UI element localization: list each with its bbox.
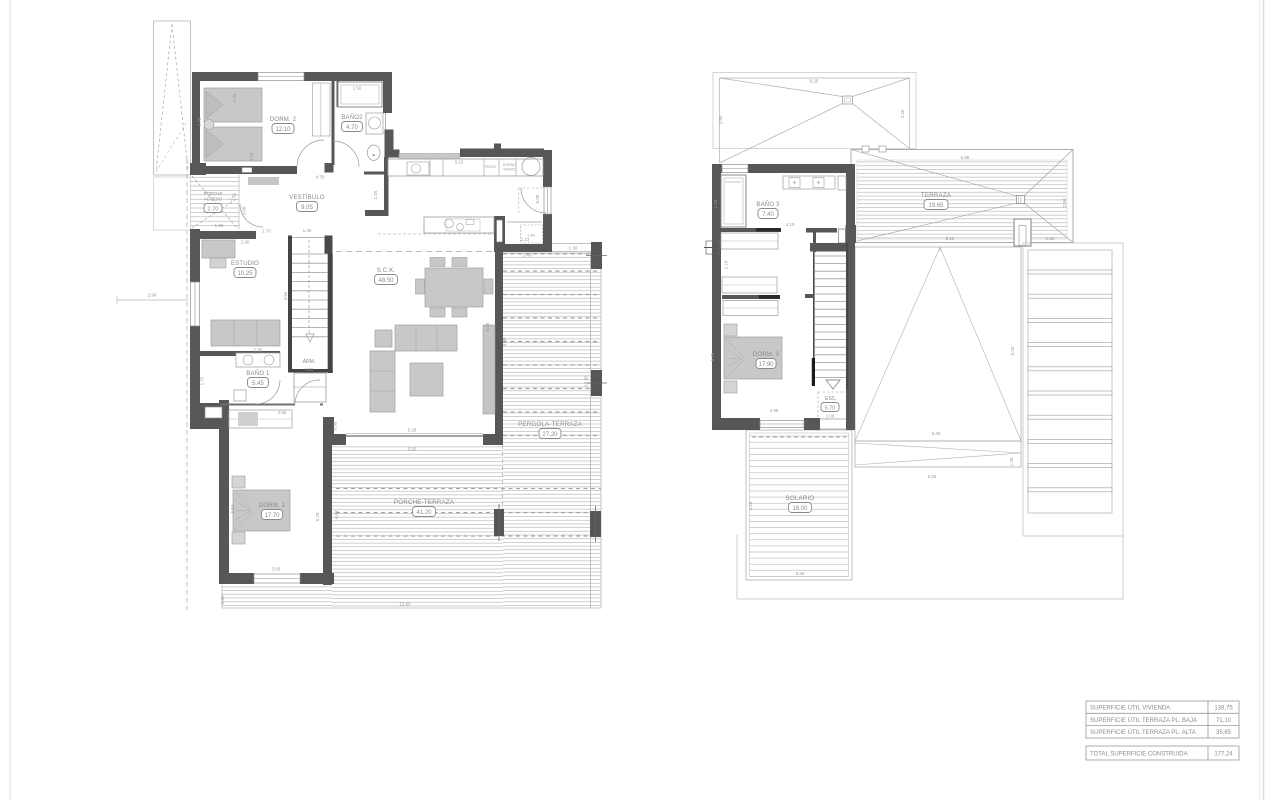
svg-text:48.50: 48.50 xyxy=(378,278,394,284)
svg-text:17.86: 17.86 xyxy=(584,375,589,387)
svg-text:6.25: 6.25 xyxy=(485,322,490,331)
svg-text:0.90: 0.90 xyxy=(220,595,225,604)
svg-text:ESC.: ESC. xyxy=(825,396,837,402)
svg-text:12.10: 12.10 xyxy=(275,127,291,133)
svg-text:35,65: 35,65 xyxy=(1216,730,1232,736)
svg-text:27.20: 27.20 xyxy=(542,432,558,438)
svg-text:41.20: 41.20 xyxy=(416,510,432,516)
svg-text:4.10: 4.10 xyxy=(786,222,795,227)
svg-text:HORNO: HORNO xyxy=(503,163,517,167)
svg-text:2.90: 2.90 xyxy=(241,240,250,245)
svg-text:5.75: 5.75 xyxy=(710,352,715,361)
svg-text:2.00: 2.00 xyxy=(242,206,247,215)
svg-text:4.50: 4.50 xyxy=(502,337,507,346)
svg-text:DORM. 2: DORM. 2 xyxy=(270,117,297,123)
svg-text:5.55: 5.55 xyxy=(928,474,937,479)
svg-text:10.25: 10.25 xyxy=(237,271,253,277)
svg-text:1.25: 1.25 xyxy=(373,190,378,199)
svg-text:SUPERFICIE ÚTIL VIVIENDA: SUPERFICIE ÚTIL VIVIENDA xyxy=(1090,705,1170,712)
svg-text:3.55: 3.55 xyxy=(283,291,288,300)
svg-text:2.75: 2.75 xyxy=(197,117,202,126)
svg-text:SOLARIO: SOLARIO xyxy=(786,495,815,502)
svg-text:FRIGO: FRIGO xyxy=(485,165,497,169)
svg-text:1.30: 1.30 xyxy=(569,246,578,251)
svg-text:2.70: 2.70 xyxy=(208,207,219,213)
svg-text:BAÑO 1: BAÑO 1 xyxy=(246,370,270,377)
svg-text:6.20: 6.20 xyxy=(1010,346,1015,355)
svg-text:1.05: 1.05 xyxy=(303,228,312,233)
svg-text:1.70: 1.70 xyxy=(262,229,271,234)
svg-text:5.10: 5.10 xyxy=(455,160,464,165)
svg-text:TOTAL SUPERFICIE CONSTRUIDA: TOTAL SUPERFICIE CONSTRUIDA xyxy=(1090,752,1188,758)
svg-text:1.08: 1.08 xyxy=(826,414,835,419)
svg-text:1.75: 1.75 xyxy=(713,199,718,208)
svg-text:2.96: 2.96 xyxy=(770,408,779,413)
svg-text:1.55: 1.55 xyxy=(215,223,224,228)
svg-text:2.96: 2.96 xyxy=(148,293,157,298)
svg-text:0.90: 0.90 xyxy=(535,194,540,203)
svg-text:4.70: 4.70 xyxy=(346,125,358,131)
svg-text:TERRAZA: TERRAZA xyxy=(921,192,952,199)
svg-text:2.10: 2.10 xyxy=(724,260,729,269)
svg-text:PORCHE: PORCHE xyxy=(204,191,223,196)
svg-text:5.50: 5.50 xyxy=(408,447,417,452)
svg-text:ESTUDIO: ESTUDIO xyxy=(231,261,259,267)
svg-text:6.25: 6.25 xyxy=(810,79,819,84)
svg-text:ARM.: ARM. xyxy=(303,359,316,365)
svg-text:1.40: 1.40 xyxy=(523,253,532,258)
svg-text:1.20: 1.20 xyxy=(1046,236,1055,241)
svg-text:0.98: 0.98 xyxy=(333,421,338,430)
svg-text:2.30: 2.30 xyxy=(900,109,905,118)
svg-text:2.90: 2.90 xyxy=(1062,198,1067,207)
svg-text:PORCHE-TERRAZA: PORCHE-TERRAZA xyxy=(394,499,455,506)
svg-text:S.C.K.: S.C.K. xyxy=(377,268,396,274)
svg-text:MICRO: MICRO xyxy=(504,168,516,172)
svg-text:5.70: 5.70 xyxy=(825,406,836,412)
svg-text:5.45: 5.45 xyxy=(252,381,264,387)
svg-text:SUPERFICIE ÚTIL TERRAZA PL. BA: SUPERFICIE ÚTIL TERRAZA PL. BAJA xyxy=(1090,717,1197,724)
svg-text:5.35: 5.35 xyxy=(932,431,941,436)
svg-text:1.23: 1.23 xyxy=(521,237,530,242)
svg-text:BAÑO2: BAÑO2 xyxy=(341,114,363,121)
svg-text:BAÑO 3: BAÑO 3 xyxy=(756,201,780,208)
svg-text:177,24: 177,24 xyxy=(1214,752,1233,758)
svg-text:12.60: 12.60 xyxy=(399,602,411,607)
svg-text:4.70: 4.70 xyxy=(316,175,325,180)
svg-text:5.50: 5.50 xyxy=(230,504,235,513)
svg-text:DORM. 3: DORM. 3 xyxy=(753,352,780,358)
svg-text:1.20: 1.20 xyxy=(1009,457,1014,466)
svg-text:9.05: 9.05 xyxy=(301,205,313,211)
svg-text:1.20: 1.20 xyxy=(305,367,314,372)
svg-text:0.90: 0.90 xyxy=(232,93,237,102)
svg-text:0.20: 0.20 xyxy=(249,152,254,161)
svg-text:5.29: 5.29 xyxy=(408,428,417,433)
svg-text:138,75: 138,75 xyxy=(1214,706,1233,712)
svg-text:7.40: 7.40 xyxy=(762,212,774,218)
svg-text:1.75: 1.75 xyxy=(200,376,205,385)
svg-text:2.05: 2.05 xyxy=(278,410,287,415)
svg-text:17.70: 17.70 xyxy=(264,513,280,519)
svg-text:6.70: 6.70 xyxy=(315,512,320,521)
svg-text:4.58: 4.58 xyxy=(334,510,339,519)
svg-text:17.90: 17.90 xyxy=(758,362,774,368)
svg-text:ACCESO: ACCESO xyxy=(204,197,223,202)
svg-text:1.50: 1.50 xyxy=(353,86,362,91)
svg-text:4.50: 4.50 xyxy=(748,501,753,510)
svg-text:2.95: 2.95 xyxy=(254,348,263,353)
svg-text:16.00: 16.00 xyxy=(792,506,808,512)
svg-text:71,10: 71,10 xyxy=(1216,718,1232,724)
svg-text:5.15: 5.15 xyxy=(946,236,955,241)
svg-text:5.56: 5.56 xyxy=(796,571,805,576)
svg-text:2.80: 2.80 xyxy=(718,115,723,124)
svg-text:LAV.: LAV. xyxy=(528,234,536,238)
svg-text:PERGOLA-TERRAZA: PERGOLA-TERRAZA xyxy=(518,421,583,428)
svg-text:6.98: 6.98 xyxy=(961,155,970,160)
svg-text:SUPERFICIE ÚTIL TERRAZA PL. AL: SUPERFICIE ÚTIL TERRAZA PL. ALTA xyxy=(1090,729,1196,736)
svg-text:VESTÍBULO: VESTÍBULO xyxy=(289,194,325,201)
svg-text:19.65: 19.65 xyxy=(928,203,944,209)
svg-text:DORM. 1: DORM. 1 xyxy=(259,503,286,509)
svg-text:3.05: 3.05 xyxy=(272,567,281,572)
